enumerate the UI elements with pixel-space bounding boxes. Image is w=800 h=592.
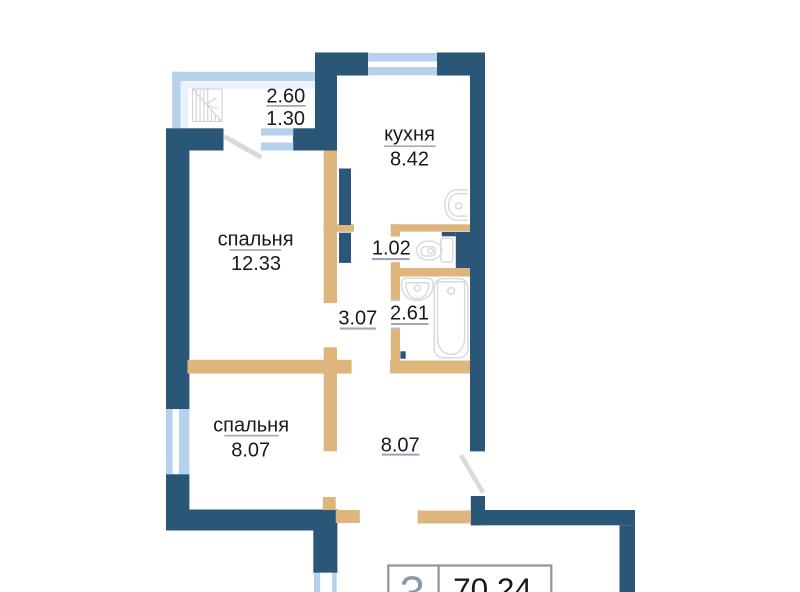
svg-text:1.02: 1.02 [372, 238, 411, 260]
svg-text:3: 3 [400, 566, 426, 592]
svg-text:кухня: кухня [384, 124, 435, 146]
svg-text:2.60: 2.60 [266, 86, 305, 108]
svg-text:1.30: 1.30 [266, 108, 305, 130]
svg-text:8.42: 8.42 [390, 149, 429, 171]
svg-text:3.07: 3.07 [338, 308, 377, 330]
svg-text:2.61: 2.61 [390, 302, 429, 324]
svg-text:спальня: спальня [213, 414, 289, 436]
svg-text:70.24: 70.24 [453, 571, 532, 592]
svg-text:12.33: 12.33 [231, 253, 281, 275]
svg-text:спальня: спальня [218, 229, 294, 251]
svg-text:8.07: 8.07 [231, 440, 270, 462]
svg-text:8.07: 8.07 [381, 435, 420, 457]
